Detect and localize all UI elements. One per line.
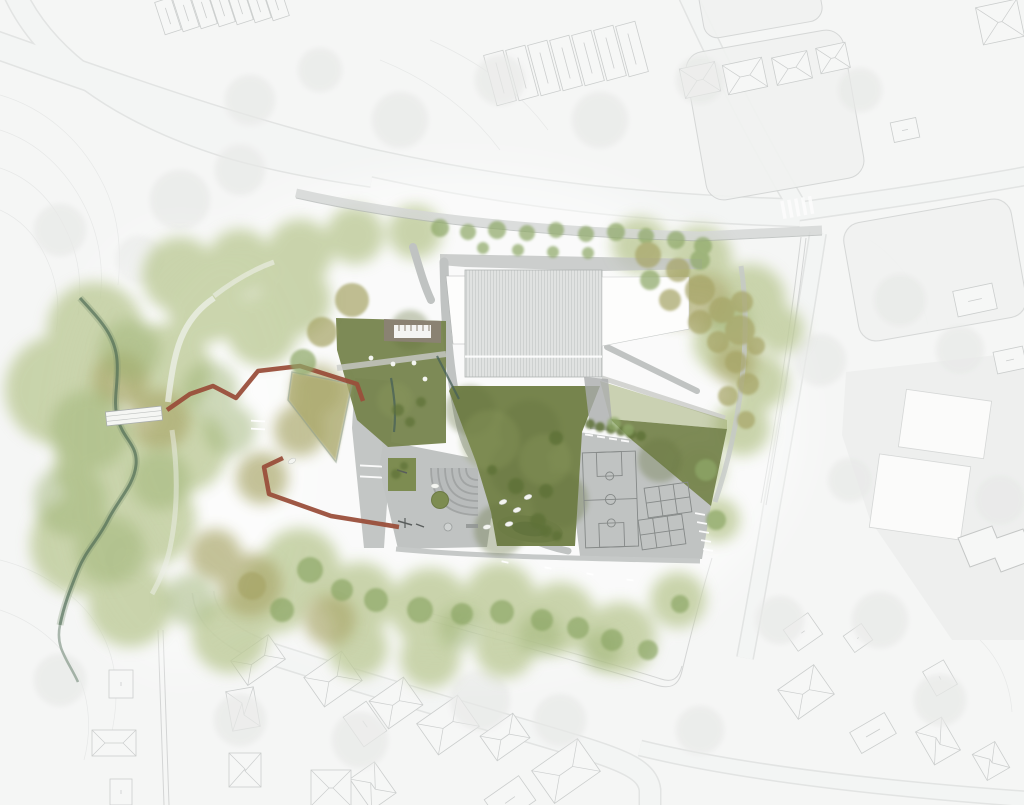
tree-canopy bbox=[671, 595, 689, 613]
tree-canopy bbox=[451, 603, 473, 625]
tree-canopy bbox=[407, 597, 433, 623]
tree-canopy bbox=[531, 609, 553, 631]
tree-canopy bbox=[290, 349, 316, 375]
tree-canopy bbox=[477, 242, 489, 254]
tree-canopy bbox=[400, 462, 408, 470]
tree-canopy bbox=[622, 424, 634, 436]
tree-canopy bbox=[706, 510, 726, 530]
shrub bbox=[549, 431, 563, 445]
tree-canopy bbox=[731, 291, 753, 313]
tree-canopy bbox=[582, 247, 594, 259]
tree-canopy bbox=[607, 223, 625, 241]
tree-canopy bbox=[460, 224, 476, 240]
tree-canopy bbox=[431, 219, 449, 237]
tree-canopy bbox=[548, 222, 564, 238]
tree-canopy bbox=[707, 331, 729, 353]
tree-canopy bbox=[688, 310, 712, 334]
shrub bbox=[585, 419, 595, 429]
tree-canopy bbox=[270, 598, 294, 622]
tree-canopy bbox=[405, 417, 415, 427]
table-dot bbox=[423, 377, 428, 382]
shrub bbox=[487, 465, 497, 475]
tree-canopy bbox=[364, 588, 388, 612]
tree-canopy bbox=[640, 270, 660, 290]
ribbed-roof bbox=[465, 270, 602, 377]
site-plan-drawing bbox=[0, 0, 1024, 805]
table-dot bbox=[369, 356, 374, 361]
tree-canopy bbox=[297, 557, 323, 583]
table-dot bbox=[391, 362, 396, 367]
tree-canopy bbox=[718, 386, 738, 406]
tree-canopy bbox=[607, 417, 621, 431]
tree-canopy bbox=[638, 640, 658, 660]
table-dot bbox=[412, 361, 417, 366]
tree-canopy bbox=[635, 242, 661, 268]
tree-canopy bbox=[512, 244, 524, 256]
tree-canopy bbox=[567, 617, 589, 639]
tree-canopy bbox=[737, 373, 759, 395]
tree-canopy bbox=[667, 231, 685, 249]
tree-canopy bbox=[659, 289, 681, 311]
tree-canopy bbox=[335, 283, 369, 317]
tree-canopy bbox=[331, 579, 353, 601]
tree-canopy bbox=[690, 250, 710, 270]
tree-canopy bbox=[307, 317, 337, 347]
tree-canopy bbox=[416, 397, 426, 407]
bench bbox=[431, 484, 439, 489]
tree-canopy bbox=[638, 228, 654, 244]
tree-ring-planter bbox=[432, 492, 449, 509]
shrub bbox=[552, 531, 562, 541]
tree-canopy bbox=[547, 246, 559, 258]
tree-canopy bbox=[685, 275, 715, 305]
tree-canopy bbox=[725, 351, 747, 373]
tree-canopy bbox=[578, 226, 594, 242]
tree-canopy bbox=[519, 225, 535, 241]
shrub bbox=[508, 478, 524, 494]
tree-canopy bbox=[238, 572, 266, 600]
site-plan-canvas bbox=[0, 0, 1024, 805]
shrub bbox=[636, 431, 646, 441]
shrub bbox=[539, 484, 553, 498]
tree-canopy bbox=[666, 258, 690, 282]
tree-canopy bbox=[490, 600, 514, 624]
shrub bbox=[595, 422, 605, 432]
shrub bbox=[540, 525, 552, 537]
tree-canopy bbox=[737, 411, 755, 429]
tree-canopy bbox=[392, 404, 404, 416]
tree-canopy bbox=[391, 469, 401, 479]
tree-canopy bbox=[488, 221, 506, 239]
pergola-patio bbox=[384, 319, 441, 343]
tree-canopy bbox=[695, 459, 717, 481]
tree-canopy bbox=[601, 629, 623, 651]
roof-ridge-line bbox=[465, 356, 602, 358]
tree-canopy bbox=[747, 337, 765, 355]
